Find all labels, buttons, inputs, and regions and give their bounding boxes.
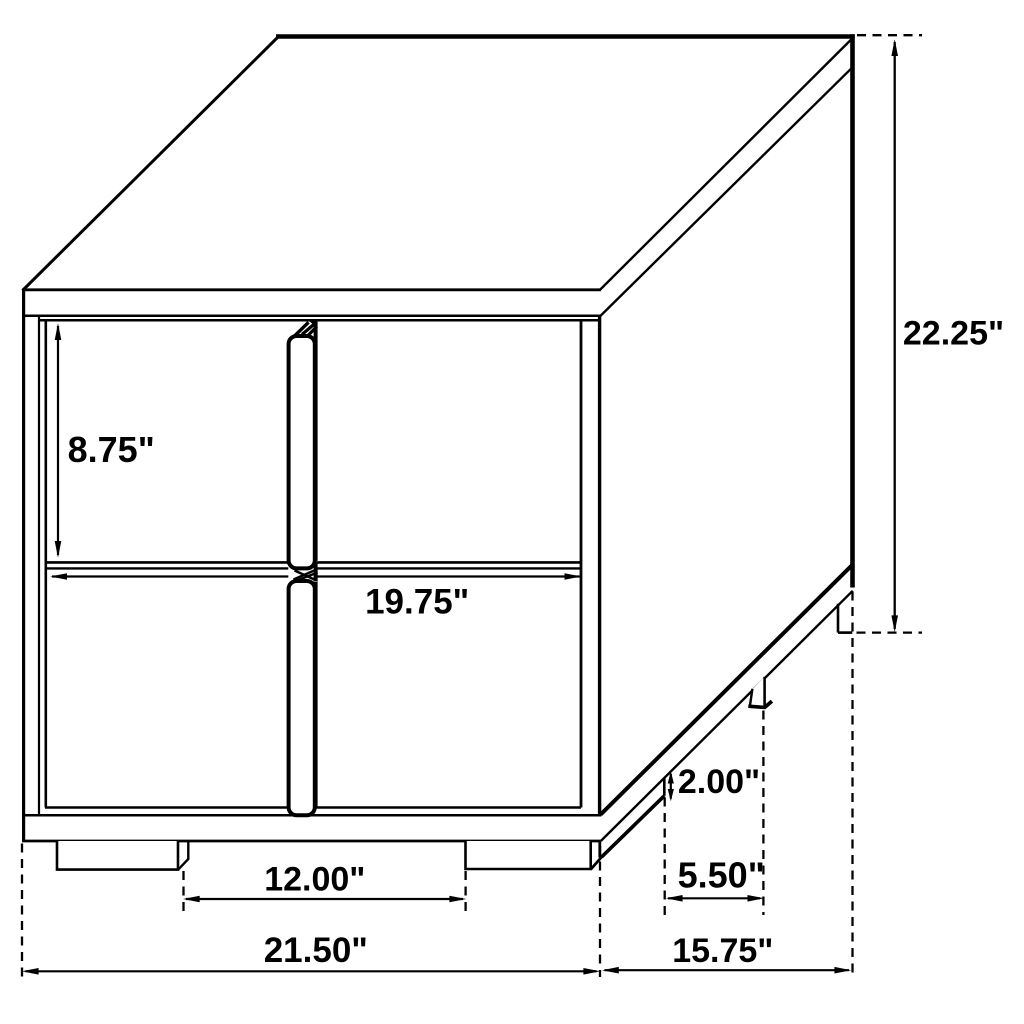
svg-text:19.75": 19.75" xyxy=(365,583,469,622)
svg-text:22.25": 22.25" xyxy=(903,315,1004,353)
svg-text:12.00": 12.00" xyxy=(264,861,365,899)
svg-text:2.00": 2.00" xyxy=(678,763,760,801)
svg-text:21.50": 21.50" xyxy=(264,931,368,970)
svg-text:15.75": 15.75" xyxy=(672,932,773,970)
svg-text:8.75": 8.75" xyxy=(68,429,155,470)
svg-text:5.50": 5.50" xyxy=(678,855,765,896)
